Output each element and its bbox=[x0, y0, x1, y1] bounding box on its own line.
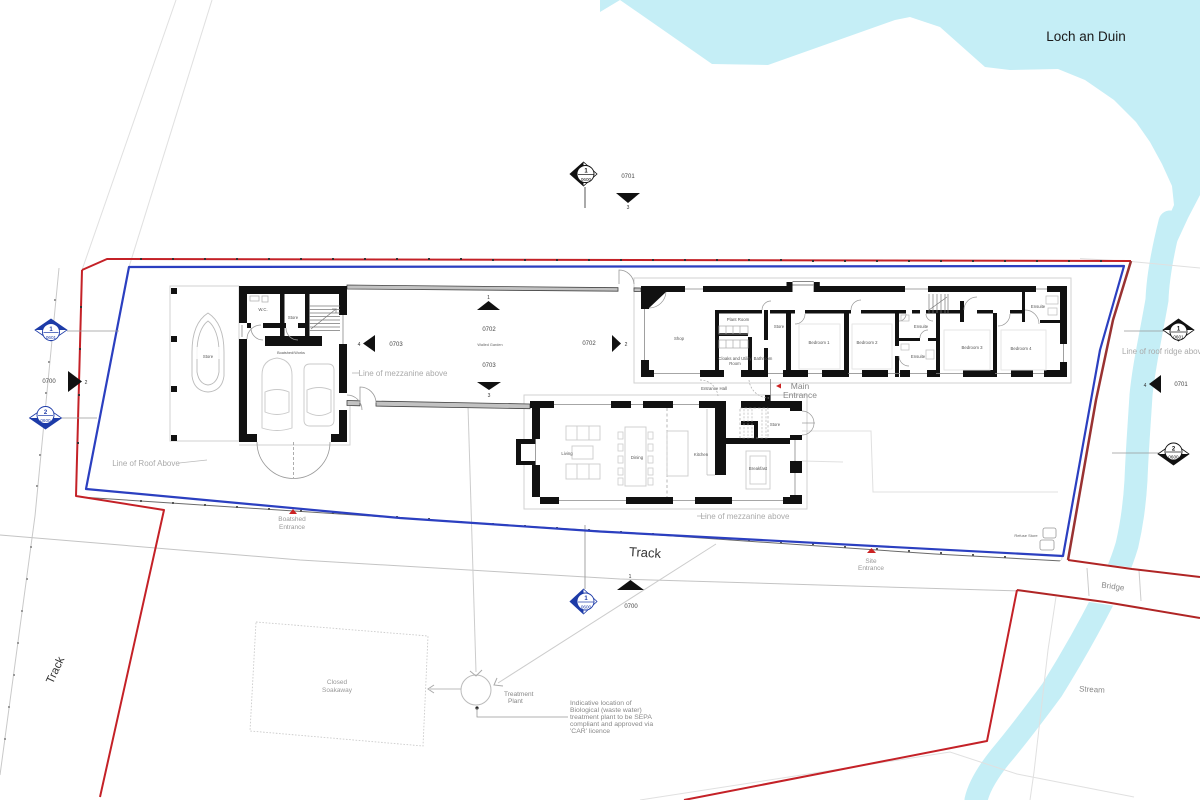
svg-text:Indicative location of: Indicative location of bbox=[570, 700, 632, 707]
svg-text:Entrance: Entrance bbox=[858, 565, 884, 572]
svg-text:0600: 0600 bbox=[1168, 455, 1179, 460]
svg-text:Ensuite: Ensuite bbox=[911, 354, 926, 359]
svg-text:W.C.: W.C. bbox=[258, 307, 267, 312]
svg-text:Site: Site bbox=[865, 558, 877, 565]
svg-text:Store: Store bbox=[203, 354, 214, 359]
svg-text:Refuse Store: Refuse Store bbox=[1014, 533, 1038, 538]
svg-text:Ensuite: Ensuite bbox=[914, 324, 929, 329]
svg-text:treatment plant to be SEPA: treatment plant to be SEPA bbox=[570, 714, 652, 721]
svg-text:Stream: Stream bbox=[1079, 684, 1106, 694]
svg-text:Bedroom 1: Bedroom 1 bbox=[808, 340, 830, 345]
svg-text:0600: 0600 bbox=[581, 605, 592, 610]
svg-text:Entrance Hall: Entrance Hall bbox=[701, 386, 727, 391]
svg-text:3: 3 bbox=[627, 205, 630, 211]
svg-text:Shop: Shop bbox=[674, 336, 685, 341]
svg-text:Closed: Closed bbox=[327, 679, 348, 686]
svg-text:0600: 0600 bbox=[581, 177, 592, 182]
svg-text:0703: 0703 bbox=[389, 342, 403, 348]
svg-text:Plant Room: Plant Room bbox=[727, 317, 750, 322]
svg-text:Kitchen: Kitchen bbox=[694, 452, 709, 457]
svg-text:Walled Garden: Walled Garden bbox=[477, 343, 502, 347]
svg-text:Soakaway: Soakaway bbox=[322, 687, 353, 694]
svg-text:3: 3 bbox=[488, 393, 491, 399]
svg-text:Boatshed/Works: Boatshed/Works bbox=[277, 351, 305, 355]
svg-text:0701: 0701 bbox=[1174, 382, 1188, 388]
svg-text:0601: 0601 bbox=[46, 335, 57, 340]
svg-text:Loch an Duin: Loch an Duin bbox=[1046, 29, 1126, 44]
svg-text:4: 4 bbox=[358, 342, 361, 348]
svg-text:Plant: Plant bbox=[508, 698, 523, 705]
svg-text:Ensuite: Ensuite bbox=[1031, 304, 1046, 309]
svg-text:Line of roof ridge above: Line of roof ridge above bbox=[1122, 347, 1200, 356]
svg-text:0700: 0700 bbox=[42, 379, 56, 385]
svg-text:Line of Roof Above: Line of Roof Above bbox=[112, 459, 180, 468]
svg-text:0701: 0701 bbox=[621, 174, 635, 180]
svg-text:Bedroom 3: Bedroom 3 bbox=[961, 345, 983, 350]
svg-text:Entrance: Entrance bbox=[783, 390, 817, 400]
svg-text:0702: 0702 bbox=[582, 341, 596, 347]
svg-text:Bedroom 4: Bedroom 4 bbox=[1010, 346, 1032, 351]
svg-text:0703: 0703 bbox=[482, 363, 496, 369]
svg-text:Track: Track bbox=[629, 544, 662, 561]
svg-text:Store: Store bbox=[774, 324, 785, 329]
svg-text:Entrance: Entrance bbox=[279, 524, 305, 531]
svg-text:2: 2 bbox=[85, 380, 88, 386]
svg-text:Store: Store bbox=[288, 315, 299, 320]
svg-text:Boatshed: Boatshed bbox=[278, 516, 306, 523]
svg-text:Bedroom 2: Bedroom 2 bbox=[856, 340, 878, 345]
svg-text:0601: 0601 bbox=[1173, 335, 1184, 340]
svg-text:Line of mezzanine above: Line of mezzanine above bbox=[359, 369, 449, 378]
svg-text:1: 1 bbox=[487, 295, 490, 301]
svg-text:1: 1 bbox=[629, 574, 632, 580]
svg-text:Treatment: Treatment bbox=[504, 691, 534, 698]
svg-text:Biological (waste water): Biological (waste water) bbox=[570, 707, 642, 714]
svg-text:Bathroom: Bathroom bbox=[754, 356, 773, 361]
svg-text:0702: 0702 bbox=[482, 327, 496, 333]
svg-text:Line of mezzanine above: Line of mezzanine above bbox=[701, 512, 791, 521]
svg-text:'CAR' licence: 'CAR' licence bbox=[570, 728, 610, 735]
svg-text:Breakfast: Breakfast bbox=[749, 466, 768, 471]
svg-text:4: 4 bbox=[1144, 383, 1147, 389]
svg-text:Store: Store bbox=[770, 422, 781, 427]
svg-text:Room: Room bbox=[729, 361, 741, 366]
svg-text:2: 2 bbox=[625, 342, 628, 348]
svg-text:Dining: Dining bbox=[631, 455, 644, 460]
svg-text:compliant and approved via: compliant and approved via bbox=[570, 721, 653, 728]
svg-text:Living: Living bbox=[561, 451, 573, 456]
svg-text:0600: 0600 bbox=[40, 418, 51, 423]
svg-text:0700: 0700 bbox=[624, 604, 638, 610]
